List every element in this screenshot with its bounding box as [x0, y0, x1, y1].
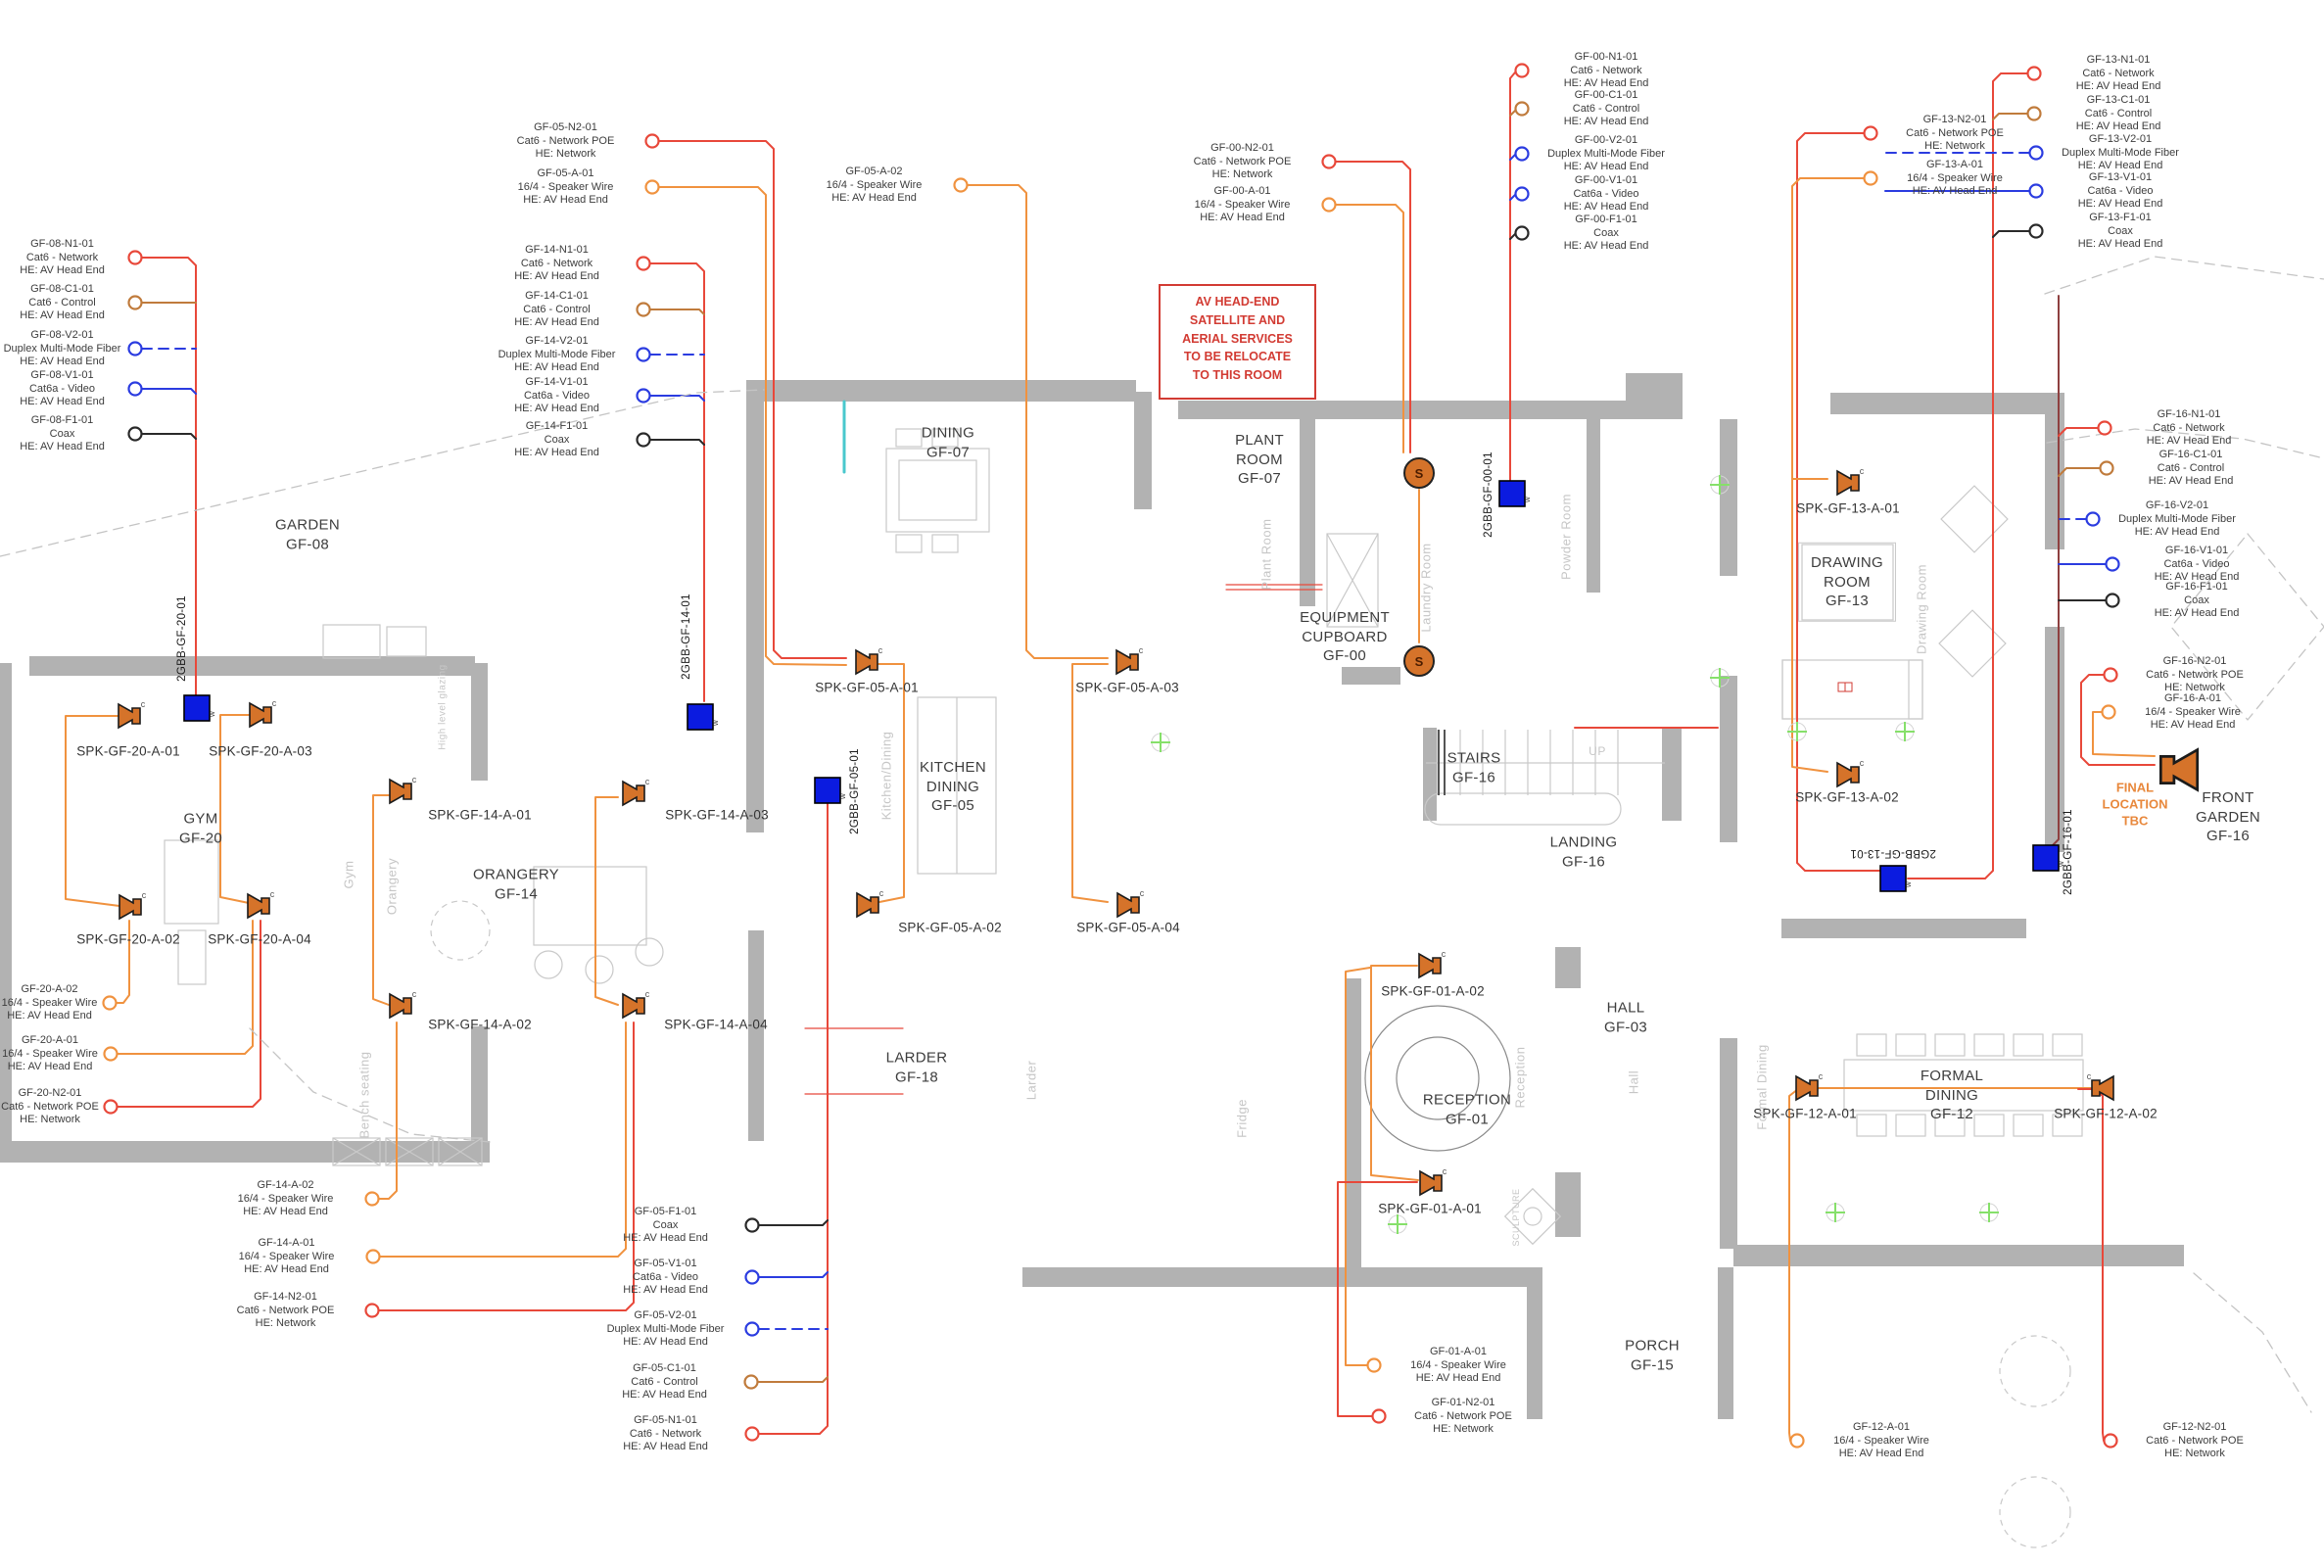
cable-connector-GF-14-C1-01: [638, 304, 650, 316]
cable-connector-GF-20-A-01: [105, 1048, 118, 1061]
faint-room-label: Bench seating: [357, 1052, 372, 1139]
ceiling-marker: c: [1140, 888, 1145, 898]
speaker-point-icon: S: [1404, 458, 1434, 488]
cable-connector-GF-00-F1-01: [1516, 227, 1529, 240]
speaker-icon-SPK-GF-12-A-01: c: [1796, 1071, 1824, 1100]
cable-callout-GF-14-A-02: GF-14-A-0216/4 - Speaker WireHE: AV Head…: [210, 1179, 361, 1219]
cable-callout-GF-14-C1-01: GF-14-C1-01Cat6 - ControlHE: AV Head End: [481, 290, 633, 330]
cable-wire-black: [650, 440, 704, 445]
room-label-dining-gf-07: DININGGF-07: [922, 424, 974, 462]
ceiling-marker: c: [412, 775, 417, 784]
cable-wire-red: [659, 141, 846, 658]
room-label-equipment-cupboard-gf-00: EQUIPMENTCUPBOARDGF-00: [1300, 608, 1390, 666]
cable-connector-GF-05-N2-01: [646, 135, 659, 148]
cable-connector-GF-20-A-02: [104, 997, 117, 1010]
svg-text:w: w: [1904, 881, 1913, 888]
cable-callout-GF-05-F1-01: GF-05-F1-01CoaxHE: AV Head End: [590, 1206, 741, 1246]
cable-callout-GF-05-A-01: GF-05-A-0116/4 - Speaker WireHE: AV Head…: [490, 167, 641, 208]
cable-connector-GF-08-V2-01: [129, 343, 142, 356]
cable-wire-brown: [758, 1377, 828, 1382]
cable-connector-GF-08-F1-01: [129, 428, 142, 441]
cable-callout-GF-14-N2-01: GF-14-N2-01Cat6 - Network POEHE: Network: [210, 1291, 361, 1331]
keypad-label-2GBB-GF-05-01: 2GBB-GF-05-01: [849, 748, 861, 834]
cable-connector-GF-08-N1-01: [129, 252, 142, 264]
cable-callout-GF-16-C1-01: GF-16-C1-01Cat6 - ControlHE: AV Head End: [2117, 449, 2264, 489]
cable-connector-GF-01-A-01: [1368, 1359, 1381, 1372]
faint-room-label: Larder: [1024, 1061, 1039, 1101]
cable-callout-GF-05-A-02: GF-05-A-0216/4 - Speaker WireHE: AV Head…: [798, 166, 950, 206]
keypad-icon-2GBB-GF-20-01: w: [184, 695, 216, 721]
speaker-label-SPK-GF-14-A-03: SPK-GF-14-A-03: [665, 808, 769, 823]
cable-connector-GF-01-N2-01: [1373, 1410, 1386, 1423]
ceiling-marker: c: [1442, 949, 1447, 959]
cable-wire-brown: [650, 309, 704, 314]
cable-callout-GF-05-V1-01: GF-05-V1-01Cat6a - VideoHE: AV Head End: [590, 1258, 741, 1298]
cable-callout-GF-16-F1-01: GF-16-F1-01CoaxHE: AV Head End: [2123, 581, 2270, 621]
cable-connector-GF-00-V1-01: [1516, 188, 1529, 201]
cable-callout-GF-13-C1-01: GF-13-C1-01Cat6 - ControlHE: AV Head End: [2045, 94, 2192, 134]
cable-connector-GF-14-F1-01: [638, 434, 650, 447]
ceiling-light-icon: [1388, 1214, 1407, 1234]
cable-callout-GF-16-V1-01: GF-16-V1-01Cat6a - VideoHE: AV Head End: [2123, 545, 2270, 585]
cable-connector-GF-14-A-02: [366, 1193, 379, 1206]
ceiling-marker: c: [1819, 1071, 1824, 1081]
cable-connector-GF-14-V2-01: [638, 349, 650, 361]
room-label-drawing-room-gf-13: DRAWINGROOMGF-13: [1798, 543, 1896, 622]
cable-wire-maroon: [2053, 296, 2059, 845]
ceiling-marker: c: [270, 889, 275, 899]
room-label-larder-gf-18: LARDERGF-18: [886, 1049, 948, 1087]
room-label-gym-gf-20: GYMGF-20: [179, 810, 222, 848]
faint-room-label: Plant Room: [1259, 519, 1274, 591]
cable-connector-GF-13-V2-01: [2030, 147, 2043, 160]
cable-callout-GF-14-V2-01: GF-14-V2-01Duplex Multi-Mode FiberHE: AV…: [481, 335, 633, 375]
ceiling-light-icon: [1710, 475, 1730, 495]
cable-wire-red: [118, 921, 261, 1107]
cable-connector-GF-05-C1-01: [745, 1376, 758, 1389]
cable-connector-GF-16-N2-01: [2105, 669, 2117, 682]
cable-connector-GF-13-C1-01: [2028, 108, 2041, 120]
cable-connector-GF-13-N1-01: [2028, 68, 2041, 80]
speaker-icon-SPK-GF-20-A-04: c: [248, 889, 275, 918]
speaker-icon-SPK-GF-01-A-02: c: [1419, 949, 1447, 977]
cable-wire-red: [650, 263, 704, 701]
ceiling-light-icon: [1895, 722, 1915, 741]
keypad-icon-2GBB-GF-16-01: w: [2033, 845, 2065, 871]
cable-callout-GF-00-C1-01: GF-00-C1-01Cat6 - ControlHE: AV Head End: [1533, 89, 1680, 129]
cable-wire-black: [142, 434, 196, 439]
speaker-icon-SPK-GF-14-A-04: c: [623, 989, 650, 1018]
cable-connector-GF-14-N1-01: [638, 258, 650, 270]
room-label-hall-gf-03: HALLGF-03: [1604, 999, 1647, 1037]
speaker-icon-SPK-GF-12-A-02: c: [2087, 1071, 2113, 1100]
cable-callout-GF-01-N2-01: GF-01-N2-01Cat6 - Network POEHE: Network: [1390, 1397, 1537, 1437]
speaker-point-icon: S: [1404, 646, 1434, 676]
room-label-porch-gf-15: PORCHGF-15: [1625, 1337, 1680, 1375]
cable-connector-GF-00-V2-01: [1516, 148, 1529, 161]
cable-callout-GF-01-A-01: GF-01-A-0116/4 - Speaker WireHE: AV Head…: [1385, 1346, 1532, 1386]
faint-room-label: Laundry Room: [1419, 543, 1434, 632]
room-label-landing-gf-16: LANDINGGF-16: [1550, 833, 1618, 872]
cable-callout-GF-20-N2-01: GF-20-N2-01Cat6 - Network POEHE: Network: [0, 1087, 100, 1127]
cable-connector-GF-14-N2-01: [366, 1305, 379, 1317]
cable-wire-orange: [1072, 664, 1108, 902]
speaker-label-SPK-GF-20-A-01: SPK-GF-20-A-01: [76, 744, 180, 759]
cable-callout-GF-08-C1-01: GF-08-C1-01Cat6 - ControlHE: AV Head End: [0, 283, 124, 323]
speaker-label-SPK-GF-14-A-02: SPK-GF-14-A-02: [428, 1018, 532, 1032]
room-label-plant-room-gf-07: PLANTROOMGF-07: [1235, 431, 1284, 489]
cable-connector-GF-05-V2-01: [746, 1323, 759, 1336]
cable-wire-orange: [379, 1022, 397, 1199]
ceiling-marker: c: [412, 989, 417, 999]
room-label-orangery-gf-14: ORANGERYGF-14: [473, 866, 559, 904]
cable-callout-GF-12-A-01: GF-12-A-0116/4 - Speaker WireHE: AV Head…: [1808, 1421, 1955, 1461]
cable-connector-GF-05-N1-01: [746, 1428, 759, 1441]
faint-room-label: Fridge: [1235, 1099, 1250, 1138]
cable-callout-GF-08-V2-01: GF-08-V2-01Duplex Multi-Mode FiberHE: AV…: [0, 329, 124, 369]
ceiling-marker: c: [2087, 1071, 2092, 1081]
cable-wire-gray: [2045, 257, 2324, 294]
faint-room-label: Formal Dining: [1755, 1044, 1770, 1129]
cable-connector-GF-13-V1-01: [2030, 185, 2043, 198]
cable-wire-orange: [595, 797, 618, 1005]
cable-wire-gray: [2194, 1273, 2311, 1412]
cable-wire-orange: [968, 185, 1108, 658]
cable-wire-blue: [142, 389, 196, 394]
cable-wires: [0, 72, 2324, 1441]
speaker-label-SPK-GF-05-A-03: SPK-GF-05-A-03: [1075, 681, 1179, 695]
cable-callout-GF-00-V1-01: GF-00-V1-01Cat6a - VideoHE: AV Head End: [1533, 174, 1680, 214]
cable-connector-GF-14-A-01: [367, 1251, 380, 1263]
ceiling-marker: c: [645, 777, 650, 786]
cable-wire-red: [2078, 1089, 2104, 1441]
cable-callout-GF-13-A-01: GF-13-A-0116/4 - Speaker WireHE: AV Head…: [1881, 159, 2028, 199]
cable-connector-GF-16-C1-01: [2101, 462, 2113, 475]
keypad-label-2GBB-GF-13-01: 2GBB-GF-13-01: [1850, 847, 1936, 859]
cable-connector-GF-13-A-01: [1865, 172, 1877, 185]
speaker-icon-SPK-GF-13-A-02: c: [1837, 758, 1865, 786]
cable-wire-orange: [1336, 205, 1403, 452]
faint-room-label: Powder Room: [1559, 494, 1574, 580]
cable-callout-GF-16-N1-01: GF-16-N1-01Cat6 - NetworkHE: AV Head End: [2115, 408, 2262, 449]
cable-callout-GF-12-N2-01: GF-12-N2-01Cat6 - Network POEHE: Network: [2121, 1421, 2268, 1461]
cable-callout-GF-05-C1-01: GF-05-C1-01Cat6 - ControlHE: AV Head End: [589, 1362, 740, 1402]
cable-callout-GF-00-F1-01: GF-00-F1-01CoaxHE: AV Head End: [1533, 214, 1680, 254]
speaker-icon-SPK-GF-20-A-03: c: [250, 698, 277, 727]
speaker-label-SPK-GF-13-A-01: SPK-GF-13-A-01: [1796, 501, 1900, 516]
cable-connector-GF-05-A-02: [955, 179, 968, 192]
svg-text:S: S: [1415, 654, 1424, 669]
faint-room-label: Gym: [342, 861, 356, 889]
ceiling-marker: c: [879, 888, 884, 898]
furniture-layer: [165, 429, 2083, 1547]
cable-connector-GF-00-N2-01: [1323, 156, 1336, 168]
speaker-label-SPK-GF-14-A-01: SPK-GF-14-A-01: [428, 808, 532, 823]
cable-wire-brown: [2059, 468, 2100, 476]
speaker-icon-SPK-GF-14-A-03: c: [623, 777, 650, 805]
ceiling-marker: c: [1139, 645, 1144, 655]
floor-plan-page: { "colors":{"red":"#e8483a","orange":"#f…: [0, 0, 2324, 1568]
cable-connector-GF-16-N1-01: [2099, 422, 2111, 435]
cable-callout-GF-13-V2-01: GF-13-V2-01Duplex Multi-Mode FiberHE: AV…: [2047, 133, 2194, 173]
svg-text:w: w: [1523, 497, 1532, 503]
cable-wire-black: [1993, 231, 2029, 237]
keypad-label-2GBB-GF-20-01: 2GBB-GF-20-01: [176, 595, 188, 682]
cable-callout-GF-20-A-02: GF-20-A-0216/4 - Speaker WireHE: AV Head…: [0, 983, 99, 1023]
cable-callout-GF-16-V2-01: GF-16-V2-01Duplex Multi-Mode FiberHE: AV…: [2104, 499, 2251, 540]
speaker-label-SPK-GF-20-A-02: SPK-GF-20-A-02: [76, 932, 180, 947]
cable-connector-GF-08-C1-01: [129, 297, 142, 309]
room-label-garden-gf-08: GARDENGF-08: [275, 516, 340, 554]
faint-room-label: Reception: [1513, 1046, 1528, 1108]
speaker-label-SPK-GF-20-A-04: SPK-GF-20-A-04: [208, 932, 311, 947]
keypad-label-2GBB-GF-14-01: 2GBB-GF-14-01: [681, 594, 692, 680]
cable-callout-GF-00-A-01: GF-00-A-0116/4 - Speaker WireHE: AV Head…: [1166, 185, 1318, 225]
keypad-label-2GBB-GF-16-01: 2GBB-GF-16-01: [2063, 809, 2074, 895]
ceiling-light-icon: [1979, 1203, 1999, 1222]
speaker-label-SPK-GF-14-A-04: SPK-GF-14-A-04: [664, 1018, 768, 1032]
speaker-icon-SPK-GF-13-A-01: c: [1837, 466, 1865, 495]
speaker-label-SPK-GF-12-A-02: SPK-GF-12-A-02: [2054, 1107, 2158, 1121]
cable-callout-GF-16-A-01: GF-16-A-0116/4 - Speaker WireHE: AV Head…: [2119, 692, 2266, 733]
cable-wire-orange: [1789, 1089, 1798, 1441]
cable-callout-GF-13-V1-01: GF-13-V1-01Cat6a - VideoHE: AV Head End: [2047, 171, 2194, 212]
ceiling-marker: c: [1443, 1166, 1447, 1176]
speaker-icon-SPK-GF-05-A-04: c: [1117, 888, 1145, 917]
cable-connector-GF-20-N2-01: [105, 1101, 118, 1114]
ceiling-marker: c: [645, 989, 650, 999]
cable-callout-GF-05-N2-01: GF-05-N2-01Cat6 - Network POEHE: Network: [490, 121, 641, 162]
cable-connector-GF-16-A-01: [2103, 706, 2115, 719]
cable-callout-GF-14-V1-01: GF-14-V1-01Cat6a - VideoHE: AV Head End: [481, 376, 633, 416]
cable-wire-red: [1510, 72, 1515, 480]
cable-connector-GF-05-V1-01: [746, 1271, 759, 1284]
ceiling-marker: c: [878, 645, 883, 655]
cable-callout-GF-08-N1-01: GF-08-N1-01Cat6 - NetworkHE: AV Head End: [0, 238, 124, 278]
plan-drawing: ccccccccccccccccccSSwwwwww: [0, 0, 2324, 1568]
keypad-icon-2GBB-GF-05-01: w: [815, 778, 847, 803]
cable-callout-GF-14-A-01: GF-14-A-0116/4 - Speaker WireHE: AV Head…: [211, 1237, 362, 1277]
cable-connector-GF-12-A-01: [1791, 1435, 1804, 1448]
faint-room-label: SCULPTURE: [1511, 1188, 1521, 1246]
cable-connector-GF-16-V1-01: [2107, 558, 2119, 571]
faint-room-label: High level glazing: [438, 664, 449, 749]
cable-wire-orange: [1346, 968, 1370, 1365]
speaker-label-SPK-GF-20-A-03: SPK-GF-20-A-03: [209, 744, 312, 759]
cable-connector-GF-16-V2-01: [2087, 513, 2100, 526]
relocation-note: AV HEAD-ENDSATELLITE ANDAERIAL SERVICEST…: [1159, 284, 1316, 400]
cable-callout-GF-14-F1-01: GF-14-F1-01CoaxHE: AV Head End: [481, 420, 633, 460]
faint-room-label: Drawing Room: [1915, 564, 1929, 654]
cable-callout-GF-08-V1-01: GF-08-V1-01Cat6a - VideoHE: AV Head End: [0, 369, 124, 409]
cable-callout-GF-13-F1-01: GF-13-F1-01CoaxHE: AV Head End: [2047, 212, 2194, 252]
speaker-label-SPK-GF-13-A-02: SPK-GF-13-A-02: [1795, 790, 1899, 805]
ceiling-light-icon: [1787, 722, 1807, 741]
cable-callout-GF-13-N1-01: GF-13-N1-01Cat6 - NetworkHE: AV Head End: [2045, 54, 2192, 94]
keypad-icon-2GBB-GF-00-01: w: [1499, 481, 1532, 506]
speaker-icon-SPK-GF-05-A-03: c: [1116, 645, 1144, 674]
faint-room-label: UP: [1589, 744, 1606, 758]
speaker-label-SPK-GF-05-A-01: SPK-GF-05-A-01: [815, 681, 919, 695]
ceiling-marker: c: [142, 890, 147, 900]
keypad-label-2GBB-GF-00-01: 2GBB-GF-00-01: [1483, 451, 1494, 538]
symbol-layer: ccccccccccccccccccSSwwwwww: [104, 65, 2198, 1448]
speaker-icon-SPK-GF-20-A-01: c: [119, 699, 146, 728]
cable-wire-red: [2059, 428, 2098, 436]
cable-callout-GF-00-N1-01: GF-00-N1-01Cat6 - NetworkHE: AV Head End: [1533, 51, 1680, 91]
speaker-icon-SPK-GF-14-A-01: c: [390, 775, 417, 803]
final-location-tbc: FINALLOCATIONTBC: [2103, 781, 2168, 831]
cable-wire-red: [759, 804, 828, 1434]
faint-room-label: Hall: [1627, 1070, 1641, 1094]
ceiling-marker: c: [1860, 466, 1865, 476]
cable-callout-GF-16-N2-01: GF-16-N2-01Cat6 - Network POEHE: Network: [2121, 655, 2268, 695]
cable-connector-GF-08-V1-01: [129, 383, 142, 396]
cable-connector-GF-05-F1-01: [746, 1219, 759, 1232]
faint-room-label: Kitchen/Dining: [879, 732, 894, 821]
ceiling-marker: c: [141, 699, 146, 709]
speaker-icon-SPK-GF-20-A-02: c: [119, 890, 147, 919]
room-label-front-garden-gf-16: FRONTGARDENGF-16: [2196, 788, 2260, 846]
cable-connector-GF-13-N2-01: [1865, 127, 1877, 140]
cable-connector-GF-05-A-01: [646, 181, 659, 194]
cable-connector-GF-00-A-01: [1323, 199, 1336, 212]
cable-wire-black: [759, 1220, 828, 1225]
ceiling-marker: c: [272, 698, 277, 708]
speaker-icon-SPK-GF-14-A-02: c: [390, 989, 417, 1018]
cable-connector-GF-00-C1-01: [1516, 103, 1529, 116]
speaker-label-SPK-GF-01-A-01: SPK-GF-01-A-01: [1378, 1202, 1482, 1216]
cable-callout-GF-08-F1-01: GF-08-F1-01CoaxHE: AV Head End: [0, 414, 124, 454]
svg-text:w: w: [838, 793, 847, 800]
cable-callout-GF-20-A-01: GF-20-A-0116/4 - Speaker WireHE: AV Head…: [0, 1034, 100, 1074]
room-label-reception-gf-01: RECEPTIONGF-01: [1423, 1091, 1511, 1129]
cable-callout-GF-00-V2-01: GF-00-V2-01Duplex Multi-Mode FiberHE: AV…: [1533, 134, 1680, 174]
cable-wire-blue: [759, 1272, 828, 1277]
speaker-label-SPK-GF-05-A-04: SPK-GF-05-A-04: [1076, 921, 1180, 935]
cable-callout-GF-14-N1-01: GF-14-N1-01Cat6 - NetworkHE: AV Head End: [481, 244, 633, 284]
room-label-formal-dining-gf-12: FORMALDININGGF-12: [1921, 1067, 1983, 1124]
ceiling-light-icon: [1710, 668, 1730, 688]
cable-connector-GF-12-N2-01: [2105, 1435, 2117, 1448]
svg-text:S: S: [1415, 466, 1424, 481]
room-label-kitchen-dining-gf-05: KITCHENDININGGF-05: [920, 758, 986, 816]
ceiling-light-icon: [1826, 1203, 1845, 1222]
ceiling-marker: c: [1860, 758, 1865, 768]
speaker-icon-SPK-GF-01-A-01: c: [1420, 1166, 1447, 1195]
cable-callout-GF-05-N1-01: GF-05-N1-01Cat6 - NetworkHE: AV Head End: [590, 1414, 741, 1454]
cable-connector-GF-14-V1-01: [638, 390, 650, 403]
cable-connector-GF-13-F1-01: [2030, 225, 2043, 238]
svg-text:w: w: [208, 711, 216, 718]
speaker-label-SPK-GF-05-A-02: SPK-GF-05-A-02: [898, 921, 1002, 935]
cable-callout-GF-00-N2-01: GF-00-N2-01Cat6 - Network POEHE: Network: [1166, 142, 1318, 182]
cable-connector-GF-16-F1-01: [2107, 594, 2119, 607]
keypad-icon-2GBB-GF-14-01: w: [688, 704, 720, 730]
cable-connector-GF-00-N1-01: [1516, 65, 1529, 77]
cable-callout-GF-13-N2-01: GF-13-N2-01Cat6 - Network POEHE: Network: [1881, 114, 2028, 154]
speaker-label-SPK-GF-01-A-02: SPK-GF-01-A-02: [1381, 984, 1485, 999]
speaker-icon-SPK-GF-05-A-01: c: [856, 645, 883, 674]
svg-text:w: w: [711, 720, 720, 727]
ceiling-light-icon: [1151, 733, 1170, 752]
cable-callout-GF-05-V2-01: GF-05-V2-01Duplex Multi-Mode FiberHE: AV…: [590, 1309, 741, 1350]
cable-wire-blue: [650, 396, 704, 401]
room-label-stairs-gf-16: STAIRSGF-16: [1447, 749, 1501, 787]
faint-room-label: Orangery: [385, 858, 400, 915]
